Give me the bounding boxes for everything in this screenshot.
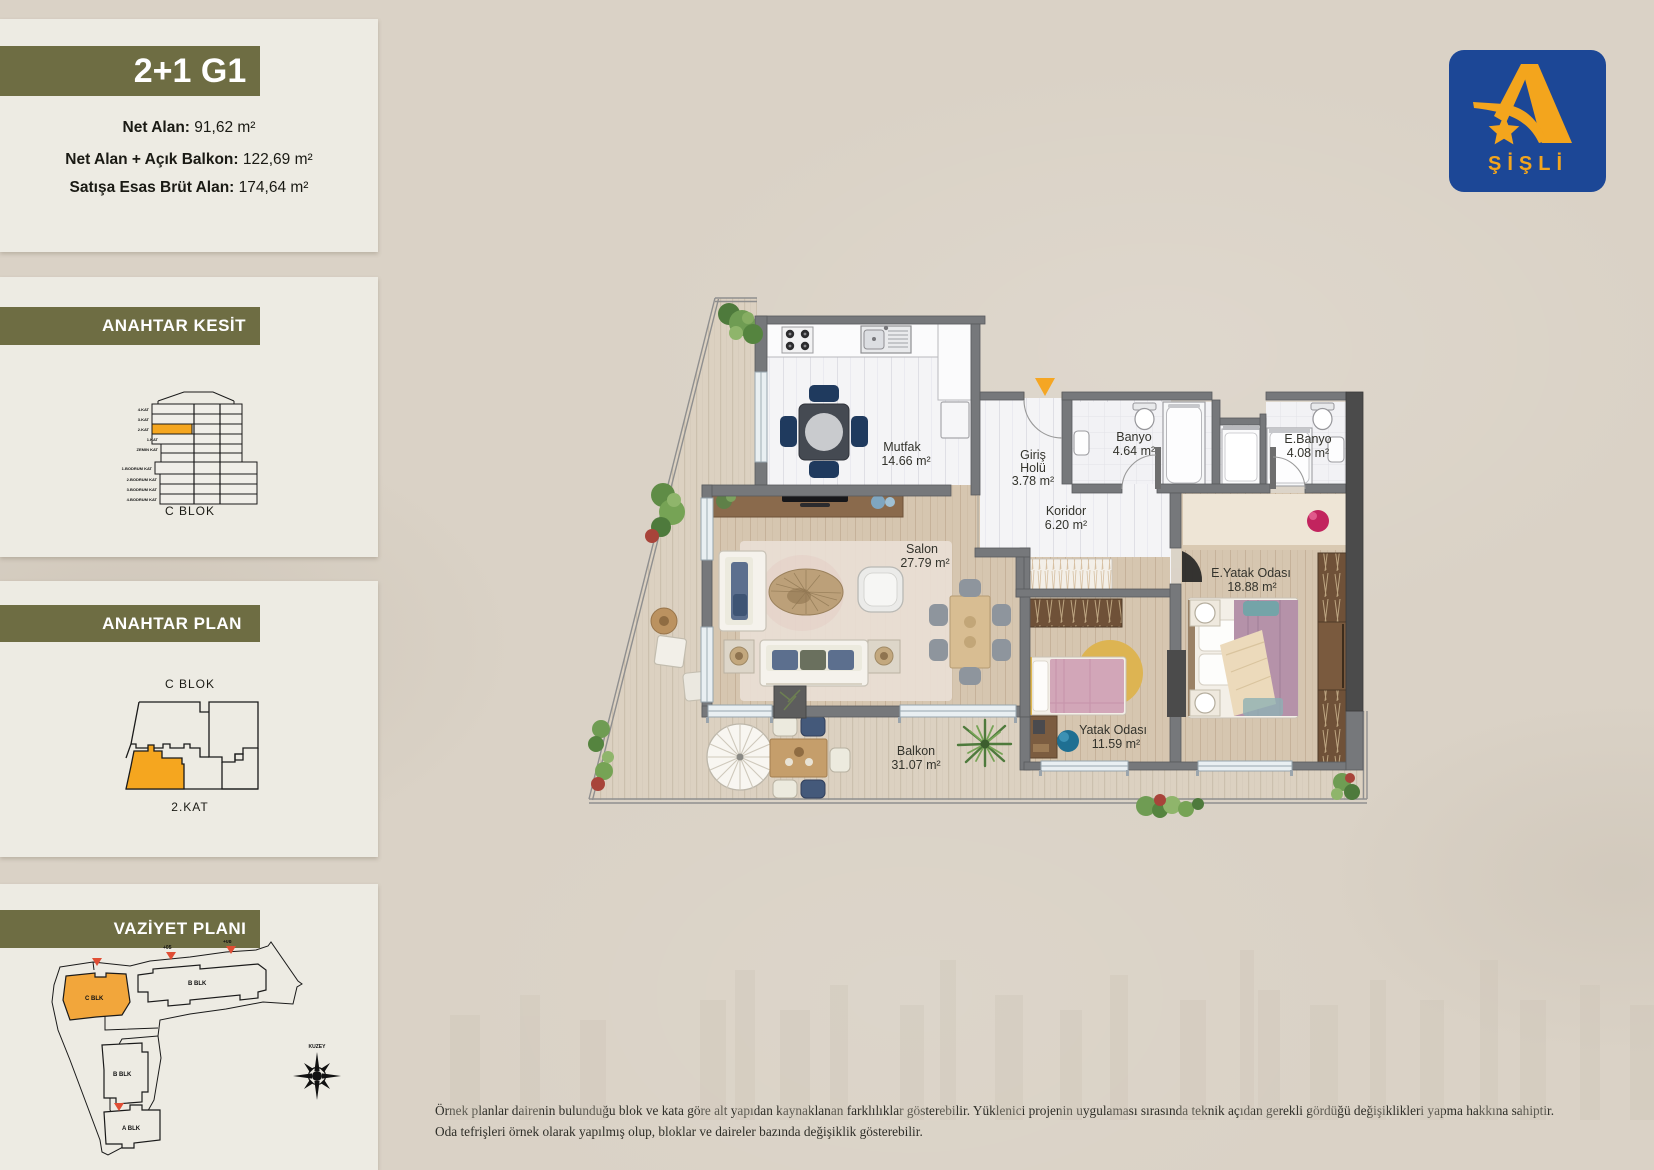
svg-text:6.20 m²: 6.20 m² (1045, 518, 1087, 532)
svg-text:Holü: Holü (1020, 461, 1046, 475)
svg-text:14.66 m²: 14.66 m² (881, 454, 930, 468)
svg-text:E.Banyo: E.Banyo (1284, 432, 1331, 446)
svg-text:Yatak Odası: Yatak Odası (1079, 723, 1147, 737)
svg-text:31.07 m²: 31.07 m² (891, 758, 940, 772)
svg-text:Koridor: Koridor (1046, 504, 1086, 518)
svg-text:11.59 m²: 11.59 m² (1092, 737, 1140, 751)
svg-text:Balkon: Balkon (897, 744, 935, 758)
svg-text:18.88 m²: 18.88 m² (1227, 580, 1276, 594)
svg-text:Salon: Salon (906, 542, 938, 556)
svg-text:4.64 m²: 4.64 m² (1113, 444, 1155, 458)
svg-text:Mutfak: Mutfak (883, 440, 921, 454)
svg-text:27.79 m²: 27.79 m² (900, 556, 949, 570)
svg-text:Giriş: Giriş (1020, 448, 1046, 462)
svg-text:4.08 m²: 4.08 m² (1287, 446, 1329, 460)
svg-text:3.78 m²: 3.78 m² (1012, 474, 1054, 488)
svg-text:E.Yatak Odası: E.Yatak Odası (1211, 566, 1291, 580)
svg-text:Banyo: Banyo (1116, 430, 1151, 444)
